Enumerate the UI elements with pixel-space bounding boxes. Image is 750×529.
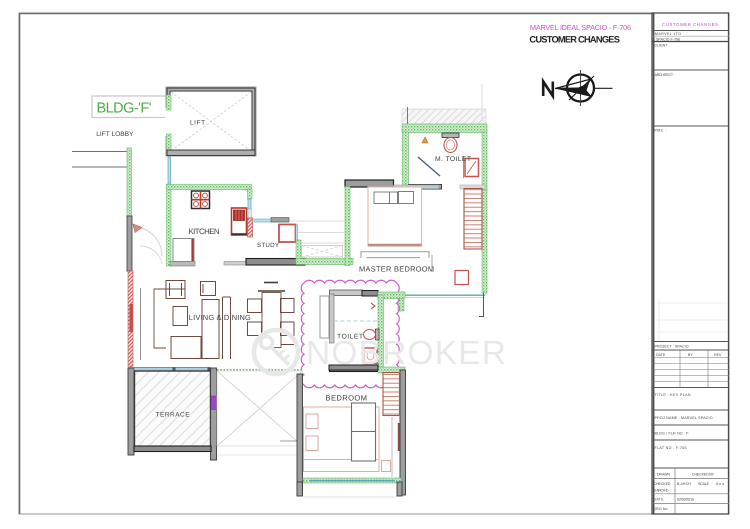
svg-text:LIFT: LIFT [190,120,205,127]
svg-text:DRG No: DRG No [654,507,668,511]
svg-text:BY: BY [688,353,693,357]
svg-text:Ans: Ans [716,482,724,486]
svg-text:LIVING & DINING: LIVING & DINING [189,313,251,322]
svg-text:SCALE: SCALE [698,482,710,486]
svg-text:CLIENT :: CLIENT : [655,44,670,48]
svg-text:REV: REV [714,353,722,357]
svg-text:B.ARCH-D: B.ARCH-D [654,489,669,493]
svg-text:B.ARCH: B.ARCH [677,482,691,486]
svg-text:ARCHITECT :: ARCHITECT : [655,73,675,77]
svg-text:DATE: DATE [656,353,666,357]
svg-text:TITLE : KEY PLAN: TITLE : KEY PLAN [655,393,691,397]
svg-text:MARVEL IDEAL SPACIO - F-706: MARVEL IDEAL SPACIO - F-706 [530,23,631,32]
svg-text:DRAWN: DRAWN [657,473,670,477]
svg-text:CHECKED BY: CHECKED BY [692,473,715,477]
svg-text:SPACIO F-706: SPACIO F-706 [656,37,680,41]
svg-text:PMC :: PMC : [655,129,667,133]
svg-text:TERRACE: TERRACE [156,412,190,419]
svg-text:PROJECT : SPACIO: PROJECT : SPACIO [655,345,689,349]
svg-text:M. TOILET: M. TOILET [435,156,471,163]
svg-text:BLDG / FLR NO : F: BLDG / FLR NO : F [655,432,690,436]
svg-text:MASTER BEDROOM: MASTER BEDROOM [359,265,434,274]
svg-text:BLDG-'F': BLDG-'F' [97,101,152,117]
svg-text:CUSTOMER CHANGES: CUSTOMER CHANGES [529,34,620,44]
svg-text:CHECKED: CHECKED [654,482,671,486]
svg-text:DATE: DATE [654,498,665,502]
svg-text:NOBROKER: NOBROKER [306,335,506,372]
svg-text:LIFT LOBBY: LIFT LOBBY [96,131,134,138]
svg-text:KITCHEN: KITCHEN [189,227,220,236]
svg-text:CUSTOMER CHANGES: CUSTOMER CHANGES [662,22,718,27]
svg-text:STUDY: STUDY [257,242,279,249]
svg-text:BEDROOM: BEDROOM [326,393,368,402]
svg-text:FLAT NO : F-706: FLAT NO : F-706 [655,446,687,450]
svg-text:02/03/2015: 02/03/2015 [677,498,694,502]
svg-text:MARVEL LTD: MARVEL LTD [655,32,681,36]
svg-text:PROJ NAME : MARVEL SPACIO: PROJ NAME : MARVEL SPACIO [655,416,713,420]
